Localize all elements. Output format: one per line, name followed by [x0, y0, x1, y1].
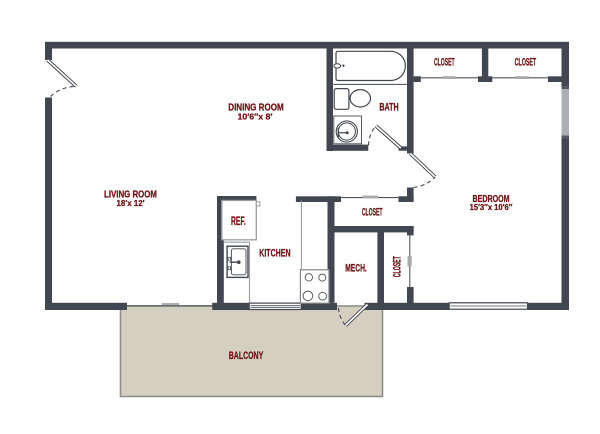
svg-text:KITCHEN: KITCHEN: [259, 247, 290, 259]
svg-text:BALCONY: BALCONY: [229, 350, 264, 362]
svg-text:15′3″x 10′6″: 15′3″x 10′6″: [470, 202, 513, 212]
svg-text:10′6″x 8′: 10′6″x 8′: [238, 111, 273, 121]
svg-text:CLOSET: CLOSET: [362, 207, 383, 219]
svg-text:REF.: REF.: [231, 214, 246, 228]
svg-text:MECH.: MECH.: [345, 262, 367, 274]
svg-text:CLOSET: CLOSET: [515, 56, 537, 68]
svg-text:CLOSET: CLOSET: [434, 56, 455, 68]
svg-text:18′x 12′: 18′x 12′: [117, 198, 145, 208]
svg-text:CLOSET: CLOSET: [391, 256, 403, 277]
svg-text:BATH: BATH: [379, 101, 398, 113]
